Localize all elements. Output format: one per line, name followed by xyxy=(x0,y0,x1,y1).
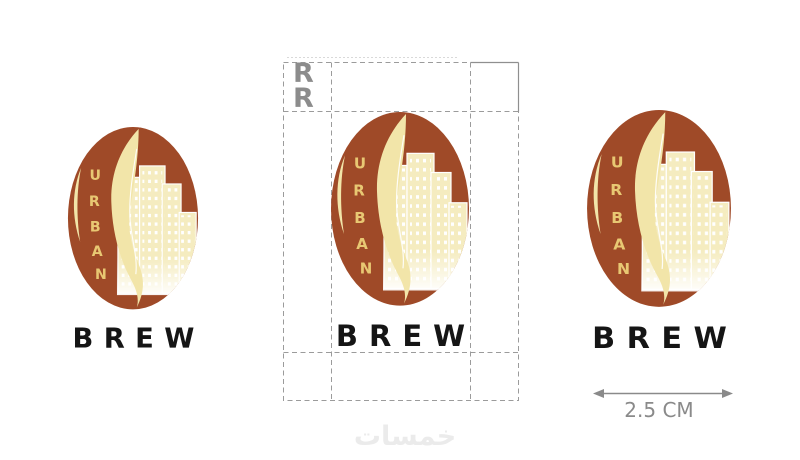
urban-letter: U xyxy=(354,154,366,172)
urban-letter: N xyxy=(617,260,630,278)
urban-letter: N xyxy=(95,267,107,283)
urban-letter: U xyxy=(611,154,624,172)
measure-label: 2.5 CM xyxy=(586,398,732,422)
urban-letter: N xyxy=(360,259,373,277)
urban-brew-logo: U R B A N BREW xyxy=(330,111,470,353)
urban-letter: A xyxy=(92,244,103,260)
urban-letter: A xyxy=(613,236,625,254)
khamsat-watermark: خمسات xyxy=(330,421,480,452)
urban-letter: B xyxy=(611,209,623,227)
urban-letter: B xyxy=(354,209,365,227)
urban-brew-logo: U R B A N BREW xyxy=(586,109,732,355)
clearspace-solid-corner xyxy=(471,63,519,112)
logo-min-size: U R B A N BREW xyxy=(586,109,732,355)
logo-left: U R B A N BREW xyxy=(67,126,199,354)
urban-letter: R xyxy=(610,181,622,199)
logo-clearspace: U R B A N BREW xyxy=(330,111,470,353)
urban-letter: U xyxy=(90,168,101,184)
urban-letter: R xyxy=(89,194,100,210)
urban-letter: R xyxy=(353,182,365,200)
clearspace-unit-letter: R xyxy=(293,86,323,111)
brew-wordmark: BREW xyxy=(336,319,470,353)
measure-arrow-right-head xyxy=(722,389,733,398)
brand-sheet: R R xyxy=(0,0,800,460)
urban-letter: A xyxy=(356,235,368,253)
brew-wordmark: BREW xyxy=(592,321,732,355)
urban-brew-logo: U R B A N BREW xyxy=(67,126,199,354)
brew-wordmark: BREW xyxy=(73,323,199,354)
clearspace-unit-marker: R R xyxy=(293,61,323,111)
urban-letter: B xyxy=(90,219,101,235)
measure-arrow xyxy=(593,389,733,398)
measure-arrow-left-head xyxy=(593,389,604,398)
